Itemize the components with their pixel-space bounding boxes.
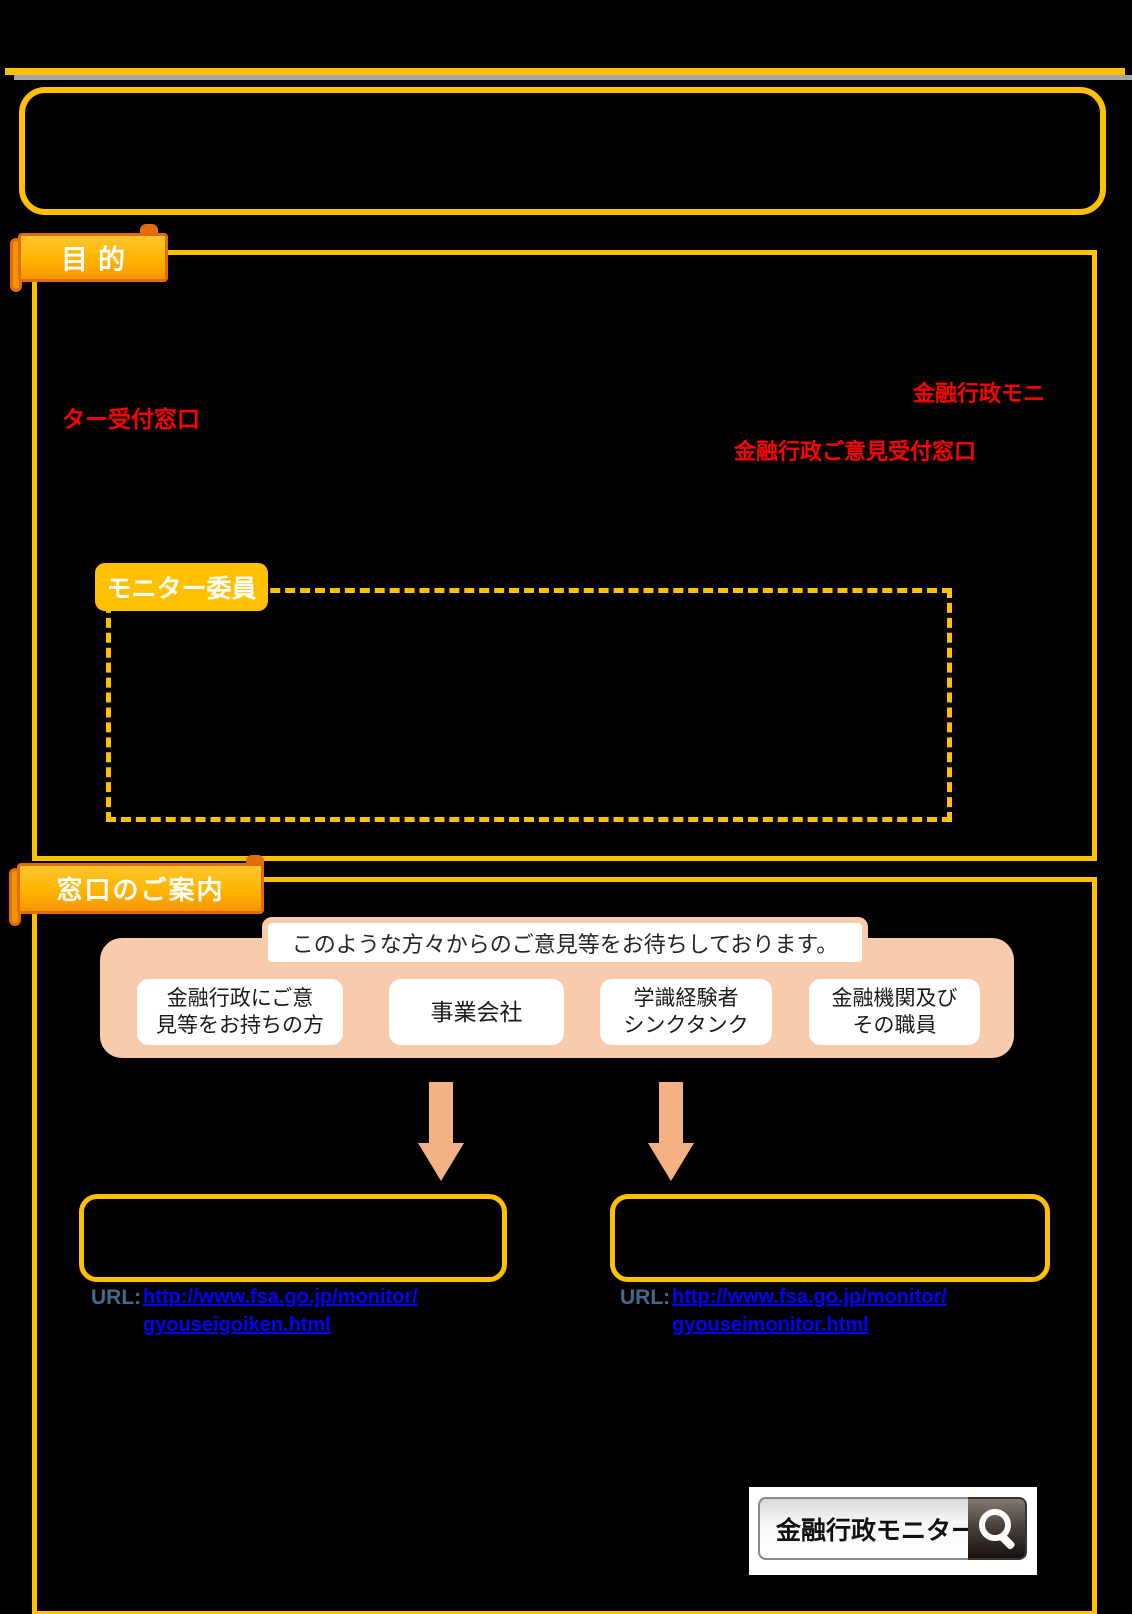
- search-widget-panel: 金融行政モニター: [749, 1487, 1037, 1575]
- search-query-text: 金融行政モニター: [776, 1511, 976, 1547]
- search-icon-handle: [998, 1533, 1016, 1551]
- audience-box-experts: 学識経験者 シンクタンク: [600, 979, 772, 1045]
- red-text-fragment-1: 金融行政モニ: [913, 376, 1045, 408]
- monitor-committee-label: モニター委員: [95, 563, 268, 611]
- red-text-fragment-2: ター受付窓口: [62, 400, 200, 434]
- right-channel-box: [610, 1194, 1050, 1282]
- purpose-ribbon: 目的: [10, 224, 158, 292]
- down-arrow-right-shaft: [659, 1082, 683, 1144]
- right-url-link-line2[interactable]: gyouseimonitor.html: [672, 1314, 869, 1337]
- audience-box-line: 金融機関及び: [832, 985, 958, 1012]
- audience-box-financial-institutions: 金融機関及び その職員: [809, 979, 980, 1045]
- purpose-ribbon-label: 目的: [18, 233, 168, 282]
- audience-headline-box: このような方々からのご意見等をお待ちしております。: [262, 917, 868, 968]
- red-text-fragment-3: 金融行政ご意見受付窓口: [734, 434, 976, 466]
- left-url-label: URL:: [91, 1286, 141, 1310]
- guide-ribbon: 窓口のご案内: [9, 855, 264, 923]
- down-arrow-left-head: [418, 1143, 464, 1181]
- top-accent-line: [5, 68, 1125, 75]
- title-box: [19, 87, 1106, 215]
- left-url-link-line2[interactable]: gyouseigoiken.html: [143, 1314, 331, 1337]
- search-input[interactable]: 金融行政モニター: [758, 1497, 968, 1560]
- right-url-label: URL:: [620, 1286, 670, 1310]
- search-button[interactable]: [968, 1497, 1027, 1560]
- monitor-committee-dashed-box: [106, 588, 952, 822]
- audience-box-line: 学識経験者: [634, 985, 739, 1012]
- guide-ribbon-text: 窓口のご案内: [56, 870, 224, 907]
- left-url-link-line1[interactable]: http://www.fsa.go.jp/monitor/: [143, 1286, 418, 1309]
- guide-ribbon-label: 窓口のご案内: [17, 863, 264, 914]
- audience-headline-text: このような方々からのご意見等をお待ちしております。: [292, 927, 838, 959]
- purpose-ribbon-text: 目的: [61, 238, 135, 277]
- down-arrow-left-shaft: [429, 1082, 453, 1144]
- audience-box-line: その職員: [853, 1012, 937, 1039]
- leaflet-page: 目的 金融行政モニ ター受付窓口 金融行政ご意見受付窓口 モニター委員 窓口のご…: [0, 0, 1132, 1614]
- audience-box-citizens: 金融行政にご意 見等をお持ちの方: [137, 979, 343, 1045]
- audience-box-line: シンクタンク: [623, 1012, 748, 1039]
- right-url-link-line1[interactable]: http://www.fsa.go.jp/monitor/: [672, 1286, 947, 1309]
- audience-box-business: 事業会社: [389, 979, 564, 1045]
- audience-box-line: 見等をお持ちの方: [156, 1012, 324, 1039]
- down-arrow-right-head: [648, 1143, 694, 1181]
- audience-box-line: 金融行政にご意: [167, 985, 314, 1012]
- top-gray-line: [14, 75, 1132, 80]
- left-channel-box: [79, 1194, 507, 1282]
- monitor-committee-text: モニター委員: [106, 569, 256, 605]
- audience-box-line: 事業会社: [431, 999, 523, 1026]
